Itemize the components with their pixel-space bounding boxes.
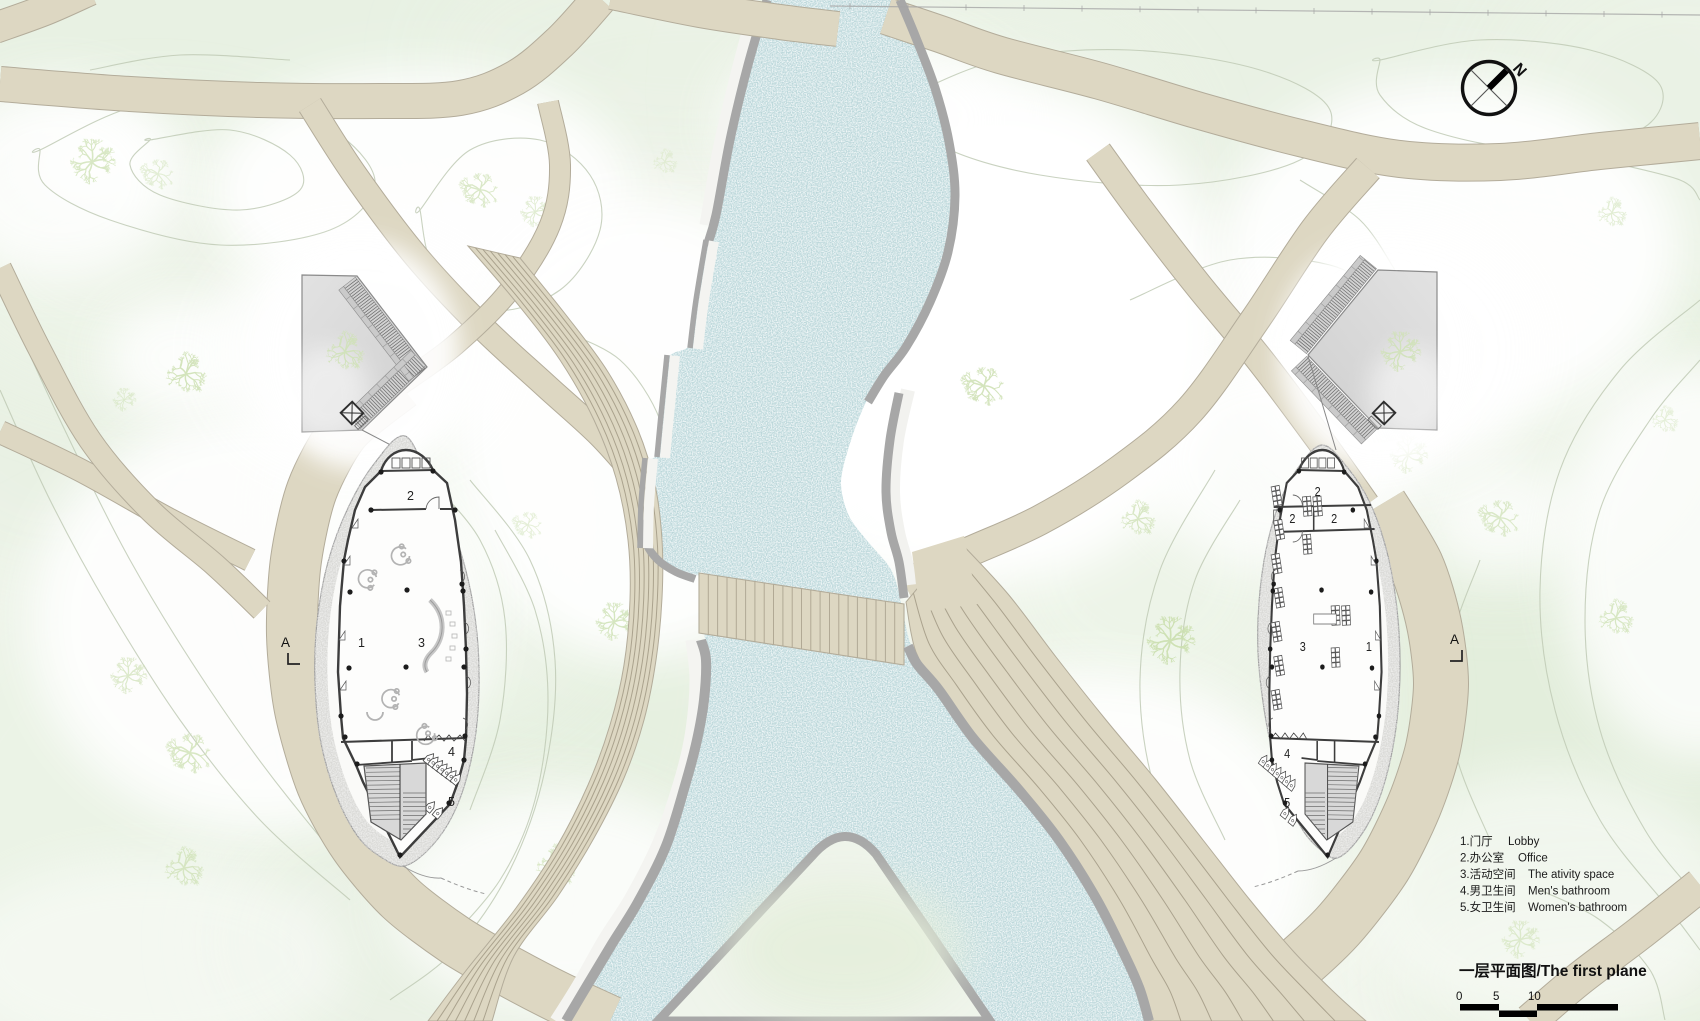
svg-text:Office: Office xyxy=(1518,853,1548,865)
svg-text:2: 2 xyxy=(1315,485,1321,499)
svg-text:A: A xyxy=(1450,632,1459,647)
svg-text:2: 2 xyxy=(1331,512,1337,526)
svg-text:2.办公室: 2.办公室 xyxy=(1460,851,1504,865)
svg-text:2: 2 xyxy=(1289,512,1295,526)
svg-text:4: 4 xyxy=(448,745,455,759)
svg-text:The ativity space: The ativity space xyxy=(1528,869,1614,881)
svg-text:3.活动空间: 3.活动空间 xyxy=(1460,867,1516,881)
svg-text:一层平面图/The first plane: 一层平面图/The first plane xyxy=(1459,962,1647,980)
svg-text:4: 4 xyxy=(1284,747,1290,761)
svg-text:1.门厅: 1.门厅 xyxy=(1460,834,1493,848)
svg-text:4.男卫生间: 4.男卫生间 xyxy=(1460,884,1516,898)
svg-text:10: 10 xyxy=(1528,991,1541,1003)
svg-text:3: 3 xyxy=(1300,640,1306,654)
svg-text:Women's bathroom: Women's bathroom xyxy=(1528,902,1627,914)
svg-text:0: 0 xyxy=(1456,991,1462,1003)
svg-text:5: 5 xyxy=(1493,991,1499,1003)
svg-text:A: A xyxy=(281,635,290,650)
svg-text:Lobby: Lobby xyxy=(1508,836,1540,848)
svg-text:Men's bathroom: Men's bathroom xyxy=(1528,886,1610,898)
svg-text:1: 1 xyxy=(358,636,365,650)
svg-text:5.女卫生间: 5.女卫生间 xyxy=(1460,900,1516,914)
svg-text:2: 2 xyxy=(407,489,414,503)
svg-text:3: 3 xyxy=(418,636,425,650)
svg-text:1: 1 xyxy=(1366,640,1372,654)
